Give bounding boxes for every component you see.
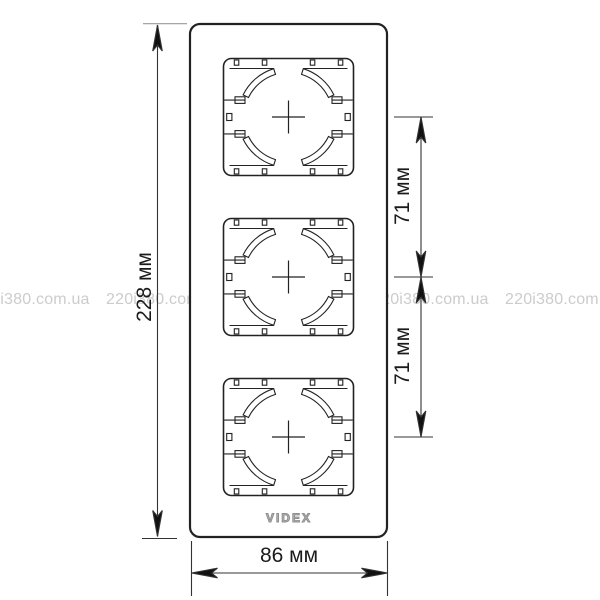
spacing-upper-dimension-label: 71 мм bbox=[391, 167, 415, 225]
height-dimension-label: 228 мм bbox=[133, 252, 157, 322]
videx-brand-logo: VIDEX bbox=[266, 511, 312, 525]
spacing-lower-dimension-label: 71 мм bbox=[391, 327, 415, 385]
width-dimension-label: 86 мм bbox=[260, 544, 318, 568]
technical-drawing-page: 220i380.com.ua 220i380.com.ua 220i380.co… bbox=[0, 0, 600, 600]
labels-layer: 228 мм 71 мм 71 мм 86 мм VIDEX bbox=[0, 0, 600, 600]
